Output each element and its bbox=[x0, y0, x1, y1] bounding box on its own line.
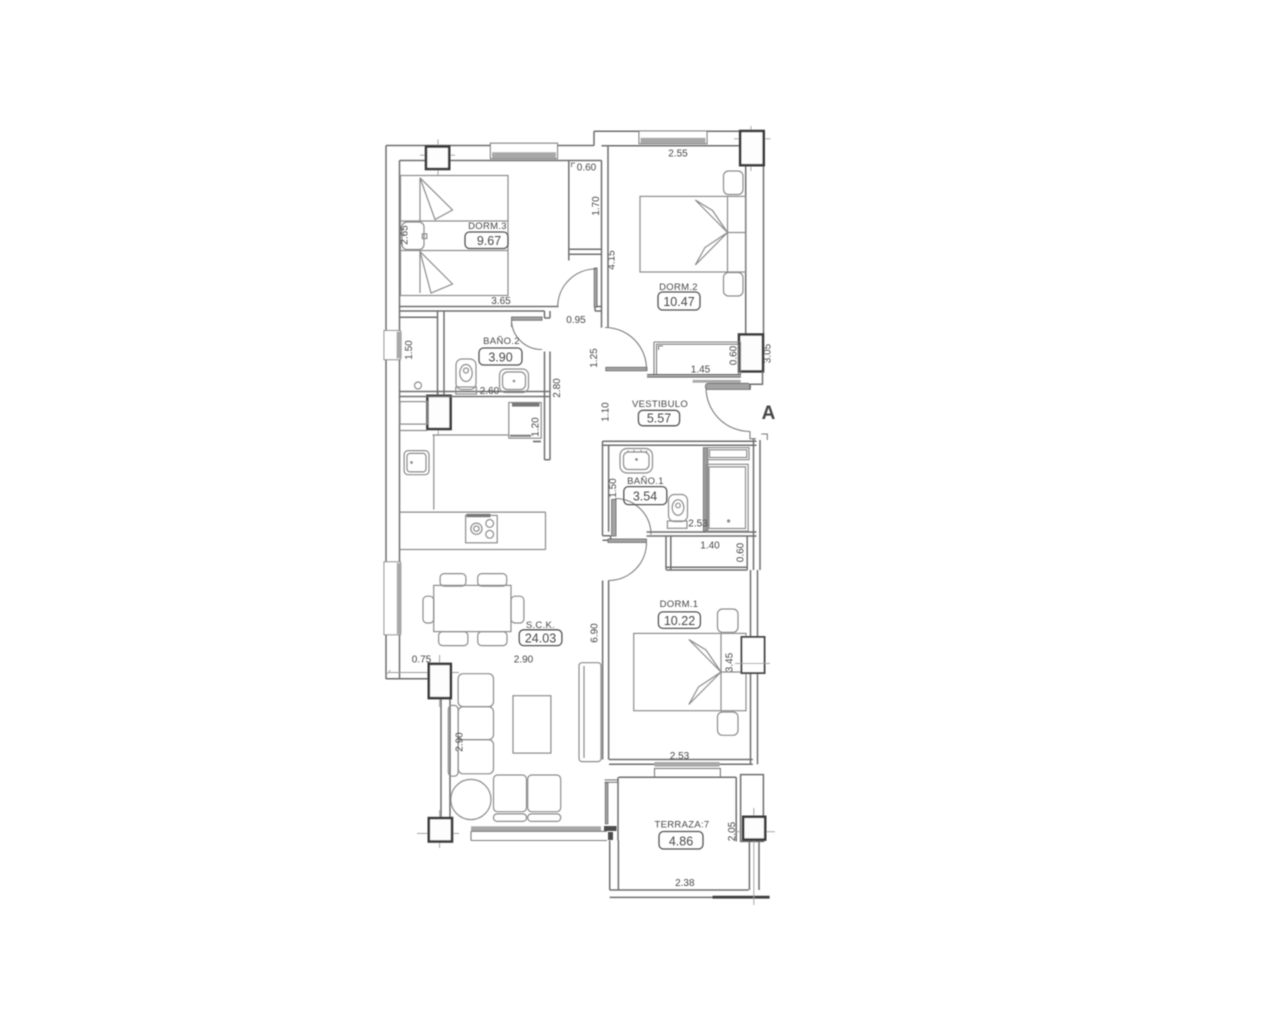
svg-text:0.60: 0.60 bbox=[736, 542, 747, 562]
svg-text:2.38: 2.38 bbox=[675, 878, 695, 889]
svg-text:3.05: 3.05 bbox=[763, 343, 774, 363]
svg-text:DORM.3: DORM.3 bbox=[468, 221, 507, 232]
svg-text:10.47: 10.47 bbox=[663, 295, 694, 309]
svg-text:1.10: 1.10 bbox=[601, 402, 612, 422]
svg-text:3.54: 3.54 bbox=[633, 490, 657, 504]
svg-text:1.40: 1.40 bbox=[700, 541, 720, 552]
svg-text:2.60: 2.60 bbox=[480, 386, 500, 397]
svg-text:3.65: 3.65 bbox=[491, 296, 511, 307]
svg-text:6.90: 6.90 bbox=[590, 623, 601, 643]
svg-text:2.90: 2.90 bbox=[455, 732, 466, 752]
svg-text:24.03: 24.03 bbox=[525, 632, 556, 646]
svg-text:TERRAZA:7: TERRAZA:7 bbox=[655, 820, 710, 831]
svg-text:A: A bbox=[762, 403, 776, 424]
svg-text:1.20: 1.20 bbox=[531, 417, 542, 437]
svg-text:2.05: 2.05 bbox=[727, 821, 738, 841]
svg-text:3.90: 3.90 bbox=[488, 351, 512, 365]
svg-text:BAÑO.2: BAÑO.2 bbox=[483, 336, 520, 347]
svg-text:1.25: 1.25 bbox=[589, 348, 600, 368]
svg-text:2.55: 2.55 bbox=[668, 149, 688, 160]
svg-text:2.53: 2.53 bbox=[688, 519, 708, 530]
svg-text:0.60: 0.60 bbox=[577, 163, 597, 174]
svg-text:10.22: 10.22 bbox=[664, 614, 695, 628]
svg-text:0.60: 0.60 bbox=[729, 345, 740, 365]
svg-text:9.67: 9.67 bbox=[477, 234, 501, 248]
svg-text:1.50: 1.50 bbox=[404, 340, 415, 360]
svg-text:0.75: 0.75 bbox=[412, 655, 432, 666]
svg-text:3.45: 3.45 bbox=[725, 652, 736, 672]
svg-text:DORM.1: DORM.1 bbox=[660, 599, 699, 610]
svg-text:2.53: 2.53 bbox=[670, 751, 690, 762]
svg-text:1.70: 1.70 bbox=[591, 196, 602, 216]
svg-text:2.90: 2.90 bbox=[514, 655, 534, 666]
svg-text:4.86: 4.86 bbox=[669, 835, 693, 849]
svg-text:VESTIBULO: VESTIBULO bbox=[632, 399, 688, 410]
svg-text:2.65: 2.65 bbox=[400, 225, 411, 245]
svg-text:1.50: 1.50 bbox=[608, 478, 619, 498]
svg-text:2.80: 2.80 bbox=[552, 378, 563, 398]
svg-text:1.45: 1.45 bbox=[691, 365, 711, 376]
svg-text:0.95: 0.95 bbox=[566, 315, 586, 326]
svg-text:BAÑO.1: BAÑO.1 bbox=[627, 476, 664, 487]
svg-text:5.57: 5.57 bbox=[647, 412, 671, 426]
